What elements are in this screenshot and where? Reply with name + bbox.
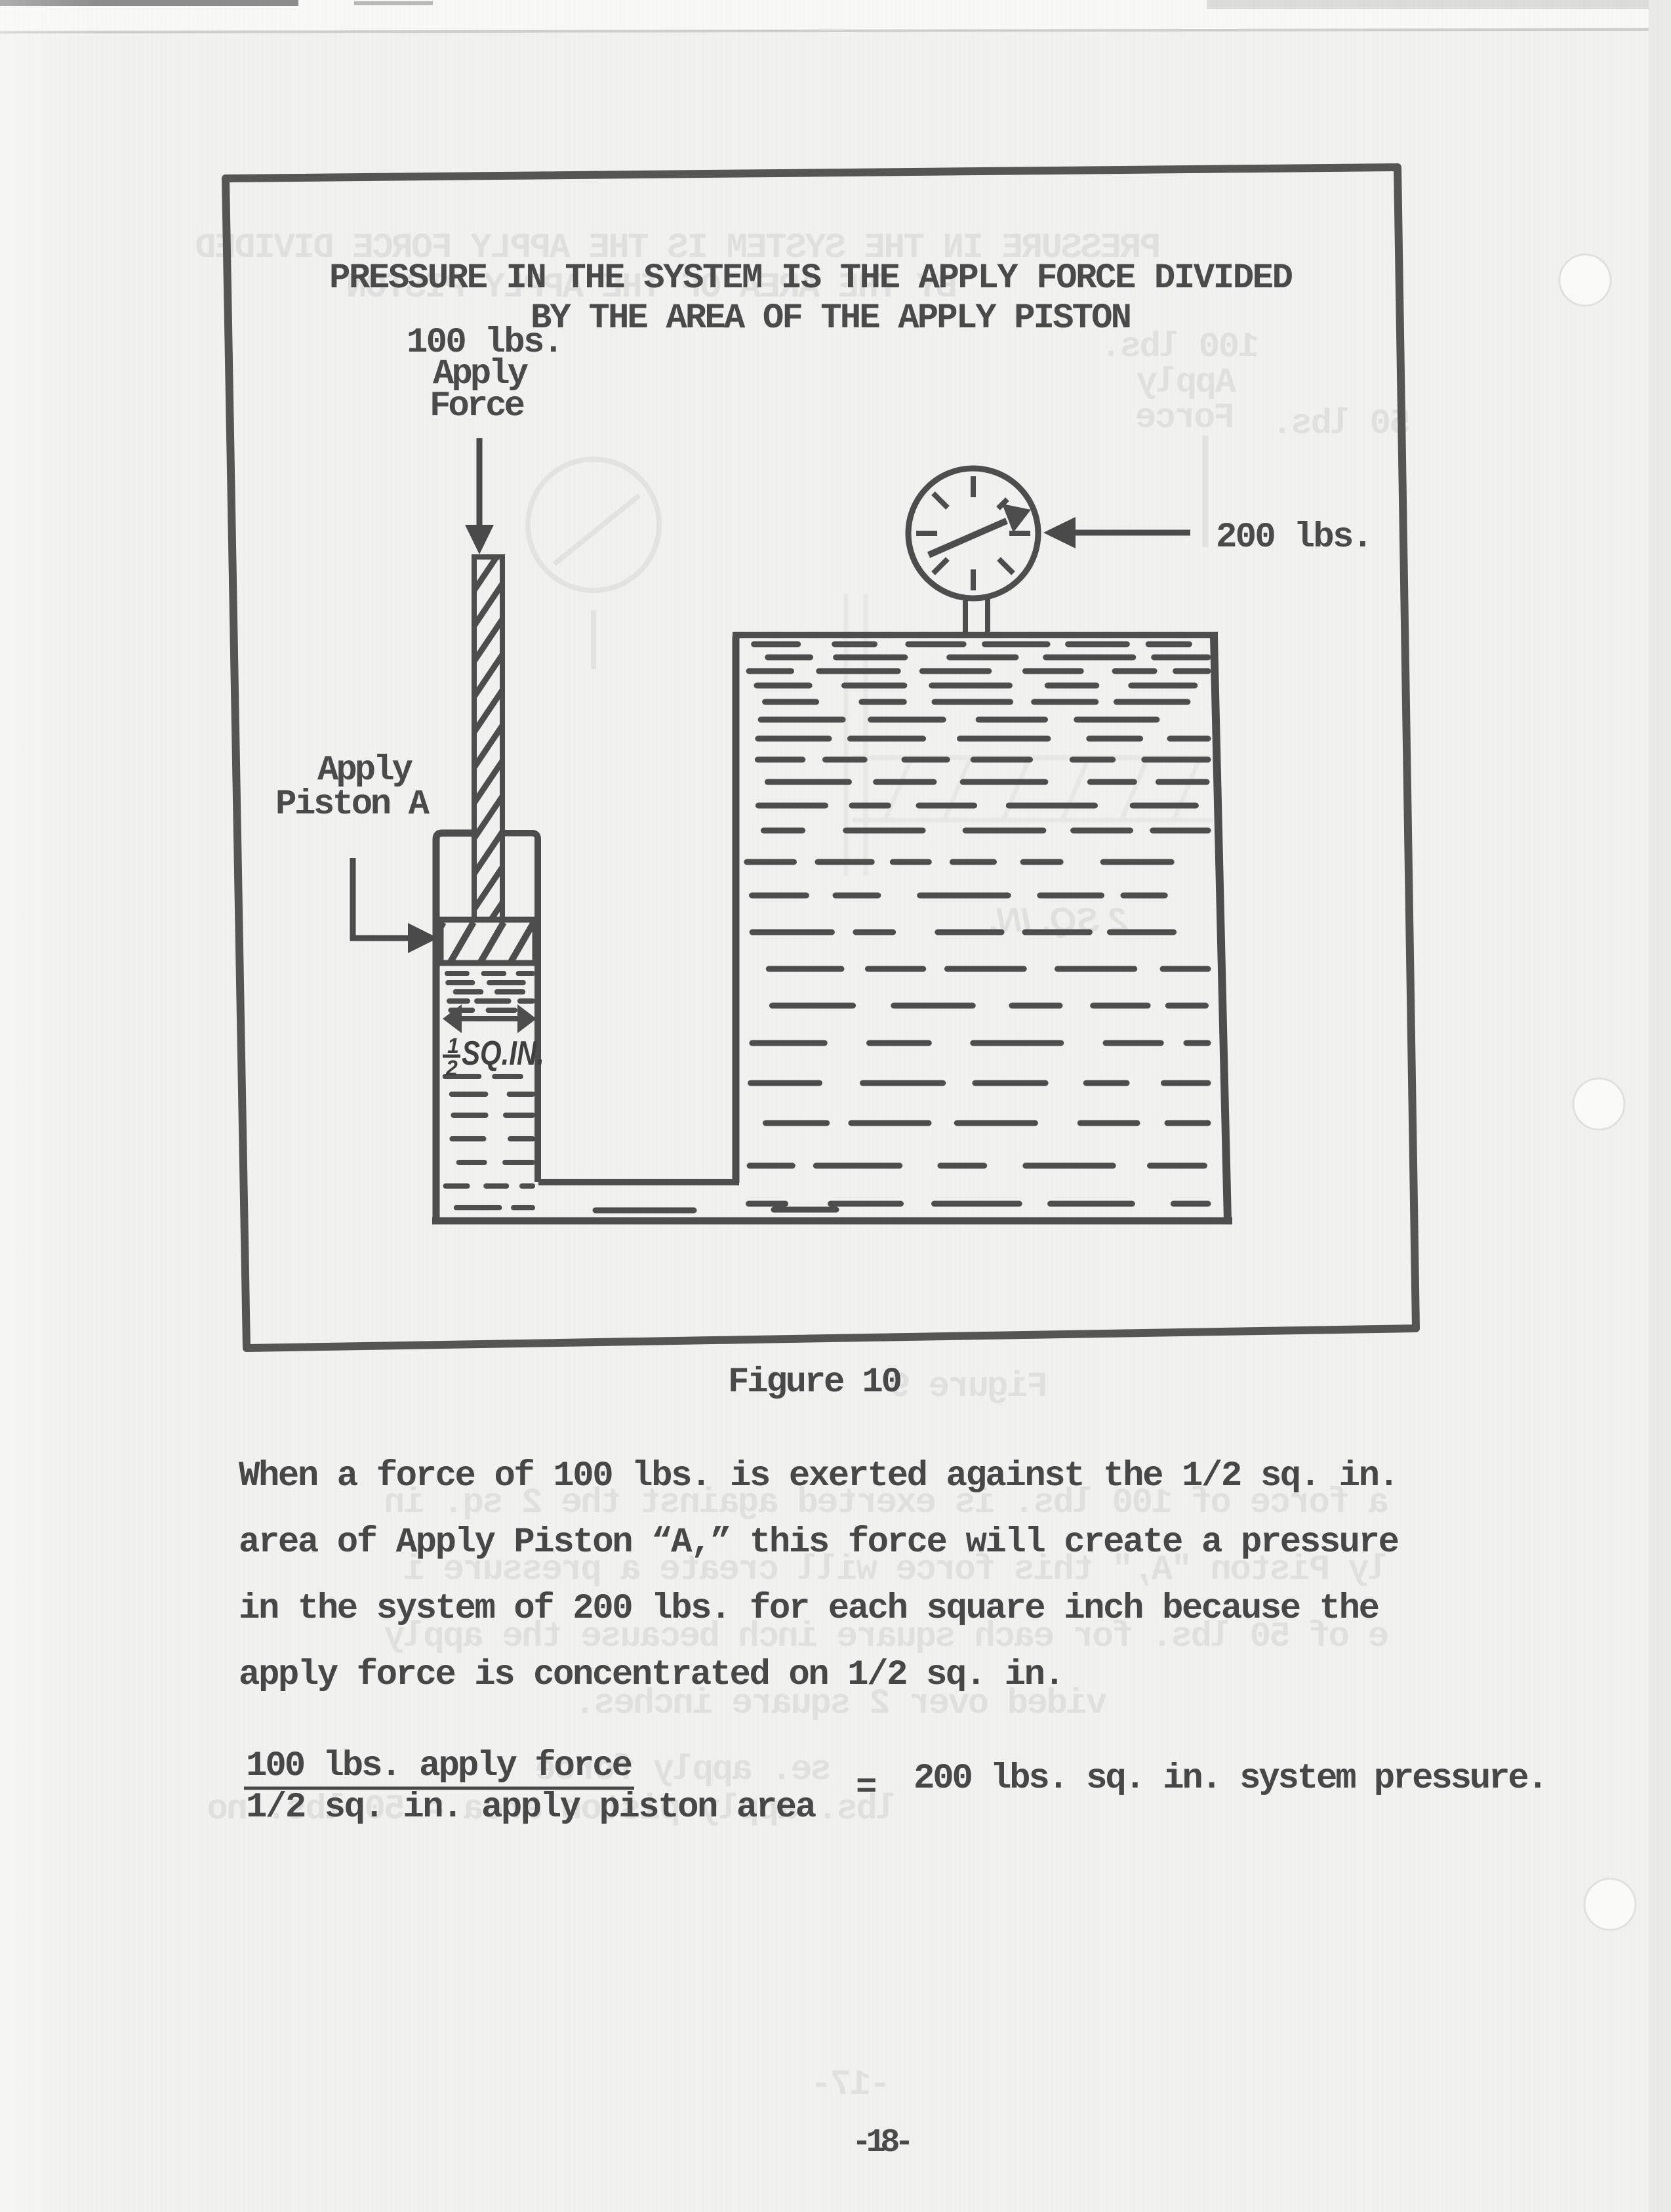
svg-text:When a force of 100 lbs. is ex: When a force of 100 lbs. is exerted agai… [239, 1456, 1399, 1496]
svg-text:-18-: -18- [852, 2124, 914, 2161]
svg-text:PRESSURE IN THE SYSTEM IS THE: PRESSURE IN THE SYSTEM IS THE APPLY FORC… [329, 258, 1293, 298]
svg-text:200 lbs. sq. in. system pressu: 200 lbs. sq. in. system pressure. [914, 1759, 1548, 1799]
svg-text:2: 2 [445, 1056, 458, 1080]
svg-text:in the system of 200 lbs. for: in the system of 200 lbs. for each squar… [239, 1589, 1380, 1629]
svg-text:area of Apply Piston “A,” this: area of Apply Piston “A,” this force wil… [239, 1523, 1399, 1563]
svg-text:apply force is concentrated on: apply force is concentrated on 1/2 sq. i… [239, 1655, 1065, 1695]
svg-text:1: 1 [447, 1034, 459, 1057]
svg-text:Apply: Apply [1137, 363, 1236, 403]
svg-text:BY THE AREA OF THE APPLY PISTO: BY THE AREA OF THE APPLY PISTON [531, 298, 1132, 338]
svg-text:-17-: -17- [812, 2065, 891, 2105]
svg-text:Figure 10: Figure 10 [728, 1362, 902, 1403]
svg-text:Force: Force [1137, 398, 1235, 438]
svg-text:Force: Force [430, 386, 525, 426]
svg-text:200 lbs.: 200 lbs. [1216, 518, 1373, 558]
svg-text:Figure 9: Figure 9 [891, 1367, 1048, 1407]
svg-text:50 lbs.: 50 lbs. [1273, 404, 1411, 444]
svg-text:=: = [856, 1768, 877, 1808]
svg-text:100 lbs. apply force: 100 lbs. apply force [246, 1746, 633, 1786]
svg-text:Piston A: Piston A [275, 785, 430, 825]
svg-text:SQ.IN.: SQ.IN. [462, 1034, 544, 1073]
svg-text:1/2 sq. in. apply piston area: 1/2 sq. in. apply piston area [246, 1788, 816, 1828]
